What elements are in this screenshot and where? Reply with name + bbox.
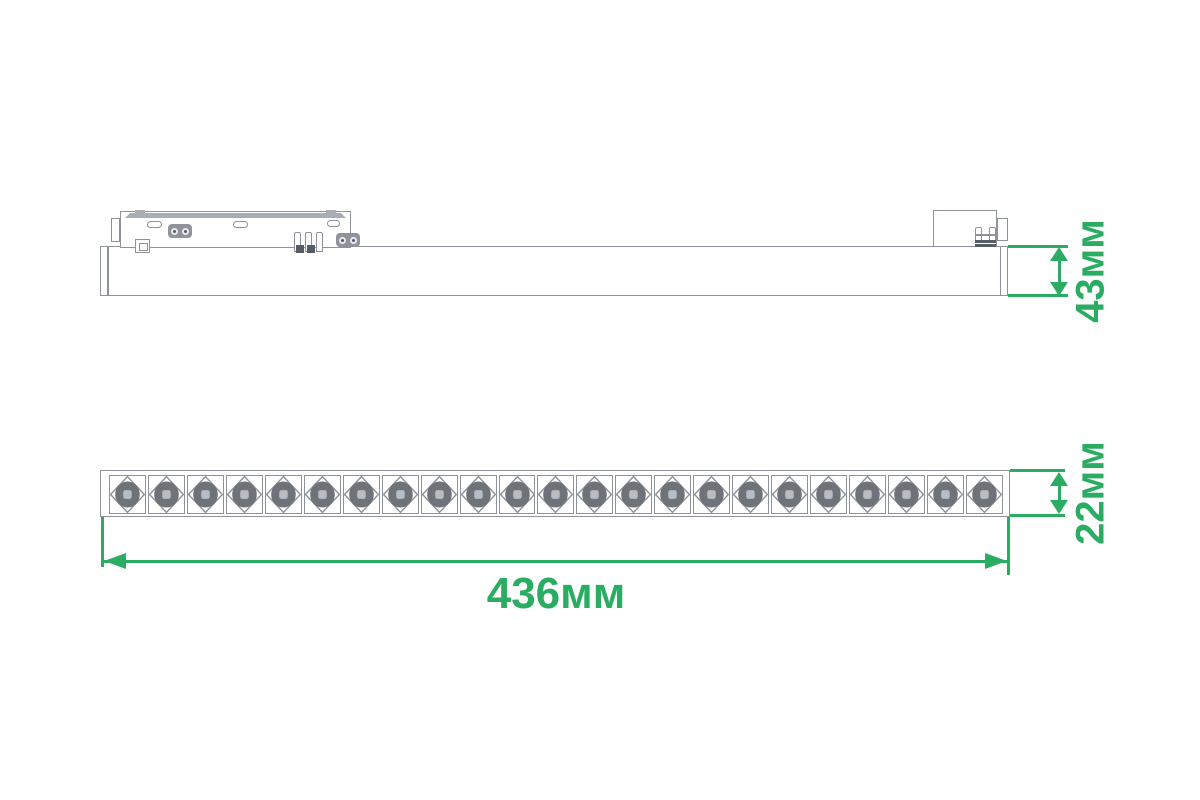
locking-knob — [135, 239, 150, 253]
led-cell — [732, 475, 769, 514]
led-cell — [265, 475, 302, 514]
led-cell — [576, 475, 613, 514]
led-chip — [746, 490, 755, 499]
led-chip — [591, 490, 600, 499]
led-cell — [421, 475, 458, 514]
contact-foot — [307, 245, 315, 253]
led-chip — [240, 490, 249, 499]
connector-pin — [339, 237, 346, 244]
track-adapter — [111, 207, 356, 248]
led-chip — [824, 490, 833, 499]
adapter-slot-2 — [233, 221, 248, 228]
led-chip — [435, 490, 444, 499]
dimension-arrow-down-icon — [1050, 282, 1068, 296]
end-connector-tab — [997, 218, 1008, 241]
power-connector-2 — [336, 233, 360, 247]
led-chip — [669, 490, 678, 499]
led-cell — [382, 475, 419, 514]
adapter-mount-tab — [111, 218, 120, 242]
led-cell — [460, 475, 497, 514]
depth-dimension-label: 22мм — [1069, 441, 1114, 545]
led-chip — [474, 490, 483, 499]
depth-arrow-shaft — [1058, 485, 1061, 501]
length-dimension-line — [104, 560, 1007, 563]
led-chip — [708, 490, 717, 499]
end-contact — [975, 227, 996, 247]
front-view: 22мм 436мм — [0, 400, 1200, 800]
luminaire-body-front — [100, 470, 1010, 517]
led-cell — [226, 475, 263, 514]
led-cell — [499, 475, 536, 514]
dimension-arrow-down-icon — [1050, 500, 1068, 514]
height-dimension-label: 43мм — [1069, 219, 1114, 323]
led-cell — [187, 475, 224, 514]
led-chip — [318, 490, 327, 499]
led-cell — [966, 475, 1003, 514]
led-chip — [201, 490, 210, 499]
led-chip — [396, 490, 405, 499]
technical-drawing: 43мм 22мм 436мм — [0, 0, 1200, 800]
led-chip — [941, 490, 950, 499]
led-chip — [902, 490, 911, 499]
length-dimension-label: 436мм — [487, 569, 626, 619]
led-cell — [109, 475, 146, 514]
adapter-top-strip — [125, 213, 346, 218]
led-strip — [109, 475, 1003, 514]
depth-extension-line-bottom — [1010, 514, 1065, 517]
led-cell — [537, 475, 574, 514]
led-cell — [148, 475, 185, 514]
led-cell — [888, 475, 925, 514]
led-cell — [927, 475, 964, 514]
adapter-clip-right — [326, 210, 336, 213]
led-chip — [630, 490, 639, 499]
led-chip — [162, 490, 171, 499]
led-cell — [615, 475, 652, 514]
right-end-cap-line — [1000, 247, 1002, 295]
dimension-arrow-up-icon — [1050, 247, 1068, 261]
contact-bridge — [975, 234, 996, 236]
adapter-slot-1 — [147, 221, 162, 228]
side-view: 43мм — [0, 0, 1200, 400]
locking-knob-inner — [139, 243, 148, 251]
led-chip — [279, 490, 288, 499]
led-chip — [863, 490, 872, 499]
led-cell — [849, 475, 886, 514]
luminaire-body-side — [100, 246, 1008, 296]
connector-pin — [171, 228, 178, 235]
led-chip — [513, 490, 522, 499]
contact-foot — [975, 240, 996, 247]
led-cell — [654, 475, 691, 514]
dimension-arrow-left-icon — [104, 553, 126, 569]
led-cell — [771, 475, 808, 514]
led-cell — [343, 475, 380, 514]
adapter-clip-left — [135, 210, 145, 213]
led-cell — [810, 475, 847, 514]
led-cell — [693, 475, 730, 514]
led-chip — [123, 490, 132, 499]
connector-pin — [350, 237, 357, 244]
end-connector — [933, 210, 1009, 248]
adapter-housing — [120, 211, 351, 248]
length-extension-line-right — [1007, 517, 1010, 575]
led-chip — [552, 490, 561, 499]
height-arrow-shaft — [1058, 260, 1061, 283]
dimension-arrow-up-icon — [1050, 472, 1068, 486]
led-chip — [785, 490, 794, 499]
adapter-slot-3 — [327, 220, 340, 227]
led-chip — [357, 490, 366, 499]
left-end-cap-line — [107, 247, 109, 295]
led-cell — [304, 475, 341, 514]
contact-prong — [316, 232, 323, 252]
contact-comb — [294, 232, 323, 253]
connector-pin — [182, 228, 189, 235]
led-chip — [980, 490, 989, 499]
contact-foot — [296, 245, 304, 253]
power-connector-1 — [168, 224, 192, 238]
dimension-arrow-right-icon — [985, 553, 1007, 569]
